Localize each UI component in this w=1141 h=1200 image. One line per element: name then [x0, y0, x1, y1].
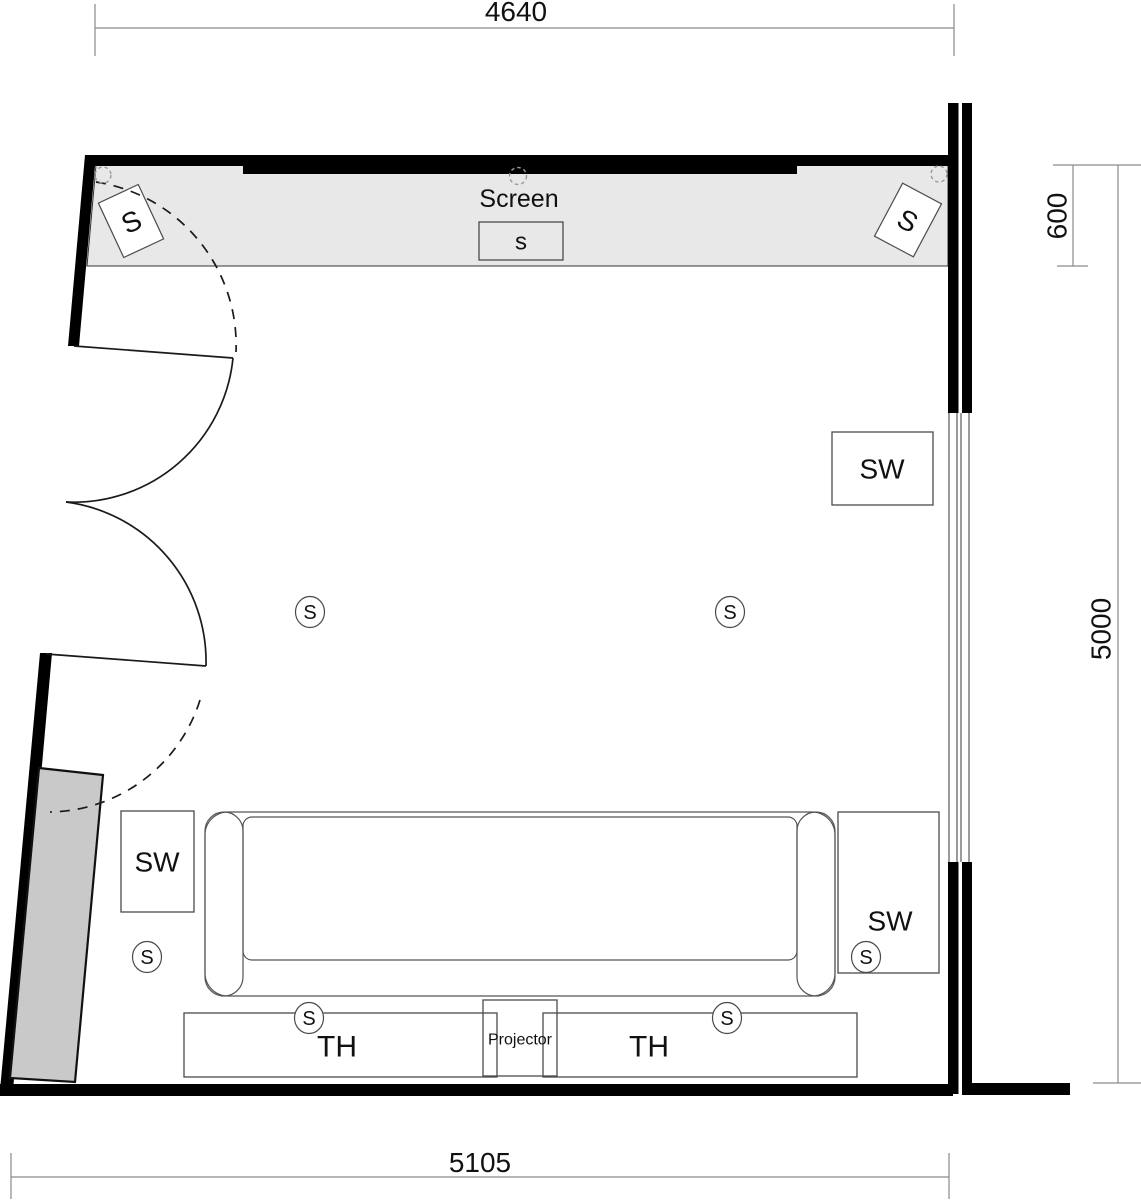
speaker-circle-side-left: S — [296, 597, 325, 628]
dimension-bottom-value: 5105 — [449, 1147, 511, 1178]
subwoofer-label: SW — [134, 847, 180, 878]
subwoofer-label: SW — [867, 906, 913, 937]
th-box — [543, 1013, 857, 1077]
cabinet — [10, 768, 103, 1082]
speaker-circle-label: S — [140, 947, 153, 969]
center-speaker-label: s — [515, 229, 527, 256]
speaker-circle-surround-right: S — [852, 942, 881, 973]
dimension-room-depth-value: 5000 — [1086, 598, 1117, 660]
speaker-circle-label: S — [303, 602, 316, 624]
door-swing-upper — [66, 358, 233, 502]
right-wall-outer-lower — [962, 862, 972, 1094]
projector-label: Projector — [488, 1032, 553, 1049]
speaker-circle-side-right: S — [716, 597, 745, 628]
speaker-circle-label: S — [302, 1008, 315, 1030]
subwoofer-right-wall: SW — [832, 432, 933, 505]
dimension-top: 4640 — [95, 0, 954, 56]
floor-plan-canvas: Screen s 4640 5105 — [0, 0, 1141, 1200]
th-box-left: TH — [184, 1013, 497, 1077]
screen-label: Screen — [479, 185, 558, 213]
projector: Projector — [483, 1000, 557, 1076]
door-leaf-upper — [74, 346, 233, 358]
speaker-circle-rear-left: S — [295, 1003, 324, 1034]
speaker-circle-label: S — [859, 947, 872, 969]
subwoofer-label: SW — [859, 454, 905, 485]
dimension-top-value: 4640 — [485, 0, 547, 27]
right-wall-inner-upper — [948, 103, 959, 413]
speaker-circle-label: S — [723, 602, 736, 624]
bottom-wall — [0, 1084, 953, 1096]
sofa — [205, 812, 835, 996]
th-box-right: TH — [543, 1013, 857, 1077]
right-wall-inner-lower — [948, 862, 959, 1094]
subwoofer-rear-left: SW — [121, 811, 194, 912]
dimension-room-depth: 5000 — [1086, 165, 1141, 1083]
sofa-seat — [243, 817, 797, 960]
th-label: TH — [629, 1031, 669, 1064]
speaker-circle-rear-right: S — [713, 1003, 742, 1034]
th-label: TH — [317, 1031, 357, 1064]
sofa-arm-right — [797, 812, 835, 996]
top-wall — [85, 155, 948, 166]
door-swing-lower — [66, 502, 206, 666]
sofa-outline — [205, 812, 835, 996]
bottom-wall-extension — [962, 1083, 1070, 1095]
dimension-screen-depth-value: 600 — [1042, 193, 1073, 240]
screen-zone: Screen s — [87, 162, 948, 266]
right-wall-outer-upper — [962, 103, 972, 413]
door-leaf-lower — [46, 654, 206, 666]
speaker-circle-surround-left: S — [133, 942, 162, 973]
sofa-arm-left — [205, 812, 243, 996]
speaker-circle-label: S — [720, 1008, 733, 1030]
dimension-screen-depth: 600 — [1042, 165, 1141, 266]
window — [949, 413, 969, 862]
floor-plan: Screen s 4640 5105 — [0, 0, 1141, 1200]
dimension-bottom: 5105 — [11, 1147, 949, 1199]
